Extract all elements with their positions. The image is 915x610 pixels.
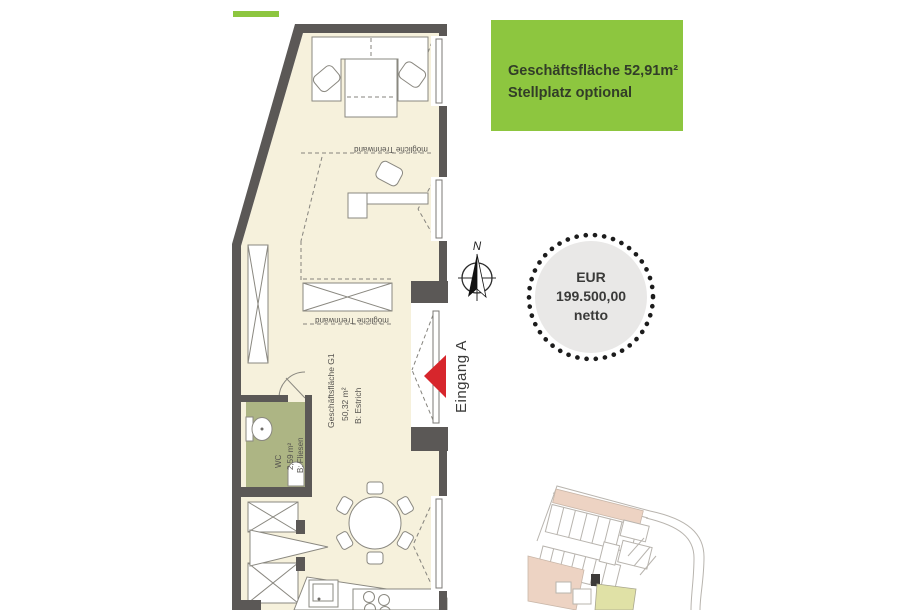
storage-box (303, 283, 392, 311)
window (431, 177, 448, 241)
site-plan (528, 486, 704, 610)
compass-icon: N (458, 241, 496, 301)
price-badge: EUR 199.500,00 netto (529, 235, 653, 359)
partition-label-mid: mögliche Trennwand (315, 316, 389, 325)
price-net-label: netto (574, 307, 608, 323)
page: Geschäftsfläche 52,91m² Stellplatz optio… (0, 0, 915, 610)
room-area-label: 50,32 m² (340, 387, 350, 421)
entrance-label: Eingang A (453, 340, 470, 413)
price-amount: 199.500,00 (556, 288, 626, 304)
room-finish-label: B: Estrich (353, 387, 363, 424)
compass-north-label: N (473, 241, 482, 253)
wc-area-label: 2,59 m² (286, 443, 295, 470)
storage-box (248, 563, 298, 603)
window (431, 36, 448, 106)
wc-finish-label: B: Fliesen (296, 437, 305, 473)
floor-plan-drawing: mögliche Trennwand mögliche Trennwand Ge… (0, 0, 915, 610)
chair-icon (367, 482, 383, 494)
round-table (349, 497, 401, 549)
site-highlighted-unit (595, 584, 636, 610)
wc-name-label: WC (274, 454, 283, 468)
chair-icon (367, 552, 383, 564)
partition-label-top: mögliche Trennwand (354, 145, 428, 154)
window (431, 496, 448, 591)
storage-box (248, 245, 268, 363)
price-currency: EUR (576, 269, 606, 285)
storage-box (248, 502, 298, 532)
room-name-label: Geschäftsfläche G1 (326, 353, 336, 428)
